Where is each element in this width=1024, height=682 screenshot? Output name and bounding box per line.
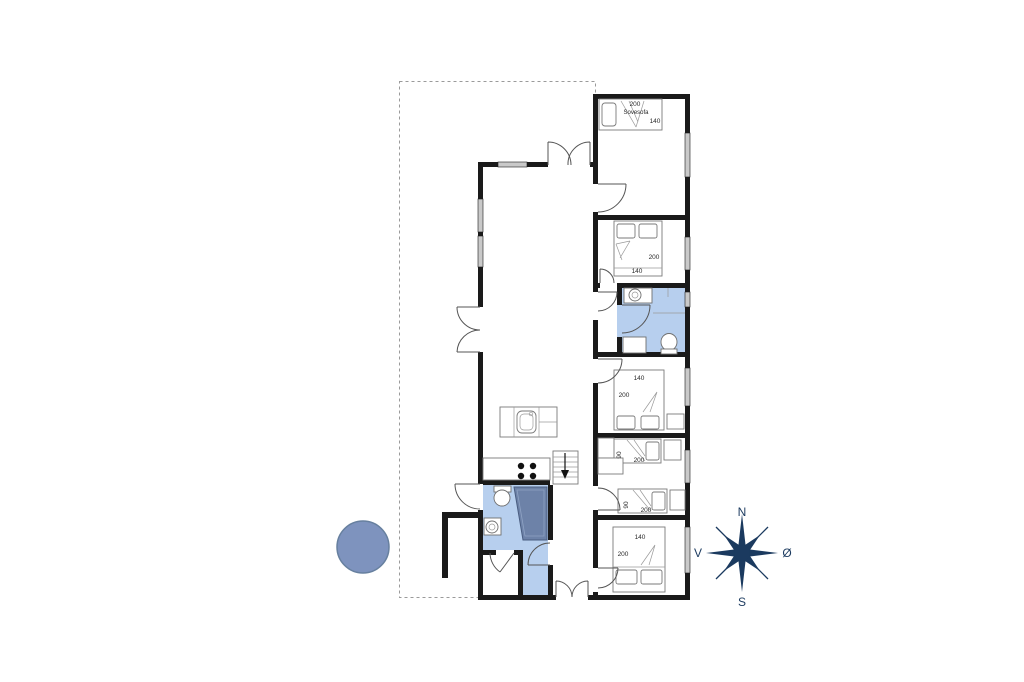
kids-bed-a-pillow bbox=[646, 442, 659, 460]
wall-kitchen-bath bbox=[478, 480, 550, 485]
window-bedroom-mid bbox=[685, 368, 690, 406]
window-living-left-b bbox=[478, 236, 483, 267]
counter-run bbox=[483, 458, 550, 480]
floorplan-svg: 200 Sovesofa 140 200 140 140 200 90 200 … bbox=[0, 0, 1024, 682]
kids-wardrobe-1 bbox=[598, 438, 614, 458]
staircase bbox=[553, 451, 578, 484]
french-door-top-left-leaf bbox=[548, 142, 571, 165]
label-kidsa-length: 200 bbox=[634, 457, 645, 464]
label-sofa-length: 200 bbox=[630, 101, 641, 108]
kids-wardrobe-2 bbox=[598, 458, 623, 474]
bed-mid-pillow-2 bbox=[641, 416, 659, 429]
opening-closet-door bbox=[496, 550, 514, 555]
kids-bed-b-pillow bbox=[652, 492, 665, 510]
label-bedmid-length: 200 bbox=[619, 392, 630, 399]
label-bedbottom-length: 200 bbox=[618, 551, 629, 558]
door-gap-bedroom-bottom bbox=[593, 568, 598, 592]
compass-east-label: Ø bbox=[782, 546, 791, 560]
bed-mid-nightstand bbox=[667, 414, 684, 429]
window-living-left-a bbox=[478, 199, 483, 232]
compass-south-label: S bbox=[738, 595, 746, 609]
bath1-toilet-tank bbox=[661, 349, 677, 354]
compass-hub bbox=[734, 545, 750, 561]
opening-french-top bbox=[548, 162, 590, 167]
kitchen-island bbox=[500, 407, 557, 437]
door-gap-bedroom-mid bbox=[593, 359, 598, 383]
wall-bath2-right-a bbox=[548, 485, 553, 540]
side-entrance-door bbox=[455, 484, 480, 509]
window-bedroom-bottom bbox=[685, 527, 690, 573]
wall-bath2-right-b bbox=[548, 565, 553, 595]
bath2-toilet-bowl bbox=[494, 490, 510, 506]
window-bathroom-1 bbox=[685, 292, 690, 307]
wall-closet-right bbox=[518, 555, 523, 595]
window-bedroom-top bbox=[685, 237, 690, 270]
bed-bottom-pillow-2 bbox=[641, 570, 662, 584]
french-door-top-right-leaf bbox=[568, 142, 590, 165]
window-kids-room bbox=[685, 450, 690, 483]
bath-nook bbox=[598, 288, 617, 352]
label-bedtop-width: 140 bbox=[632, 268, 643, 275]
kitchen-counter bbox=[483, 458, 550, 480]
bath1-toilet-bowl bbox=[661, 334, 677, 351]
location-marker bbox=[337, 521, 389, 573]
opening-side-entrance bbox=[478, 484, 483, 510]
compass-rose: N Ø S V bbox=[694, 505, 792, 609]
bed-mid-pillow-1 bbox=[617, 416, 635, 429]
bath1-cabinet bbox=[623, 337, 646, 353]
wall-shed-left bbox=[442, 512, 448, 578]
bath1-sink bbox=[629, 289, 641, 301]
label-bedbottom-width: 140 bbox=[635, 534, 646, 541]
bathroom-1-door-gap bbox=[617, 305, 622, 337]
label-sofa-width: 140 bbox=[650, 118, 661, 125]
label-kidsb-length: 200 bbox=[641, 507, 652, 514]
bed-top-pillow-2 bbox=[639, 224, 657, 238]
kids-bed-a-nightstand bbox=[664, 440, 681, 460]
compass-star bbox=[706, 514, 778, 592]
label-sofa-name: Sovesofa bbox=[623, 110, 649, 116]
label-bedtop-length: 200 bbox=[649, 254, 660, 261]
door-gap-bedroom-top bbox=[600, 283, 617, 288]
window-sofa-room bbox=[685, 133, 690, 177]
window-living-top bbox=[498, 162, 527, 167]
label-kidsb-width: 90 bbox=[623, 501, 630, 509]
kids-bed-b-nightstand bbox=[670, 490, 685, 510]
french-door-left-lower-leaf bbox=[457, 330, 480, 352]
floorplan-canvas: 200 Sovesofa 140 200 140 140 200 90 200 … bbox=[0, 0, 1024, 682]
door-gap-kids bbox=[593, 486, 598, 510]
french-door-left-upper-leaf bbox=[457, 307, 480, 330]
bath2-sink bbox=[486, 521, 498, 533]
door-gap-sofa-room bbox=[593, 184, 598, 212]
sofa-bed-pillow bbox=[602, 103, 616, 126]
compass-north-label: N bbox=[738, 505, 747, 519]
bed-bottom-pillow-1 bbox=[616, 570, 637, 584]
label-kidsa-width: 90 bbox=[616, 451, 623, 459]
closet-floor bbox=[483, 555, 518, 595]
door-gap-nook bbox=[593, 292, 598, 320]
label-bedmid-width: 140 bbox=[634, 375, 645, 382]
bed-top-pillow-1 bbox=[617, 224, 635, 238]
compass-west-label: V bbox=[694, 546, 702, 560]
